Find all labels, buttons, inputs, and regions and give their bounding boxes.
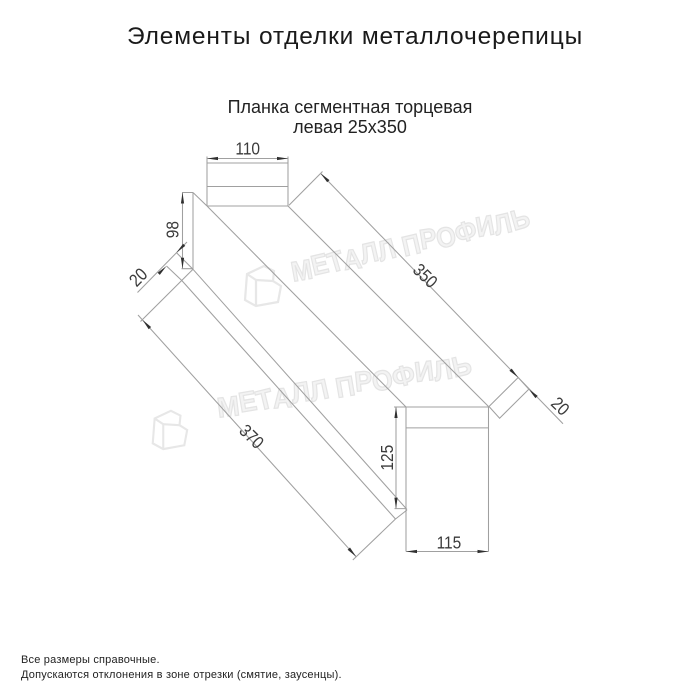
svg-text:20: 20 [125,264,152,291]
svg-text:115: 115 [437,533,462,553]
svg-text:125: 125 [377,445,397,471]
svg-text:350: 350 [409,260,442,293]
svg-text:98: 98 [162,221,182,238]
svg-text:110: 110 [235,138,260,158]
svg-text:370: 370 [235,420,268,453]
svg-text:20: 20 [547,393,574,420]
